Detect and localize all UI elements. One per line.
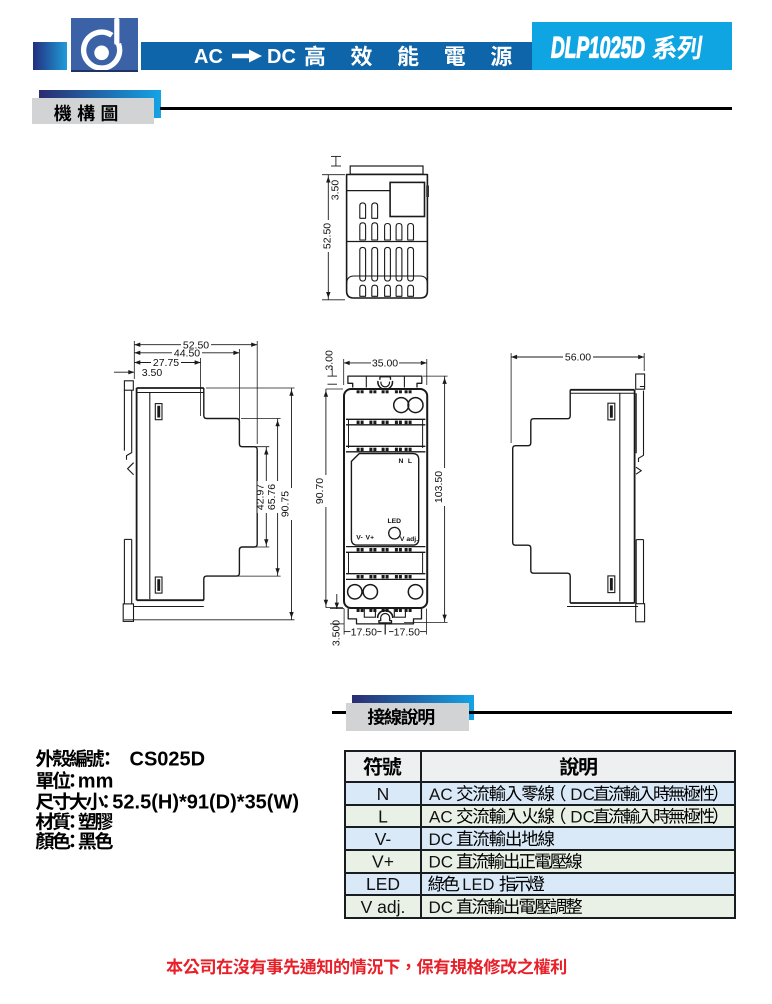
svg-text:17.50: 17.50 [394, 626, 420, 638]
svg-text:3.50: 3.50 [142, 367, 163, 379]
svg-text:90.75: 90.75 [280, 491, 292, 517]
svg-text:mm: mm [78, 771, 114, 793]
svg-text:42.97: 42.97 [255, 484, 267, 510]
svg-text:AC: AC [194, 46, 223, 68]
svg-text:3.50: 3.50 [330, 180, 342, 201]
svg-text:DC: DC [429, 898, 454, 917]
svg-text:V-: V- [356, 535, 362, 542]
svg-text:V+: V+ [366, 535, 375, 542]
svg-text:V adj.: V adj. [361, 897, 406, 917]
svg-text:17.50: 17.50 [351, 626, 377, 638]
svg-text:L: L [408, 458, 412, 465]
svg-text:AC: AC [429, 785, 453, 804]
svg-text:35.00: 35.00 [372, 358, 398, 370]
svg-text:DC: DC [429, 830, 454, 849]
svg-text:3.00: 3.00 [324, 350, 336, 371]
svg-text:V-: V- [375, 829, 392, 849]
svg-text:65.76: 65.76 [266, 484, 278, 510]
svg-text:LED: LED [366, 874, 400, 894]
svg-text:N: N [377, 784, 390, 804]
svg-text:V+: V+ [372, 852, 394, 872]
svg-text:DC: DC [570, 785, 595, 804]
svg-text:N: N [399, 458, 404, 465]
svg-text:L: L [378, 806, 388, 826]
svg-text:56.00: 56.00 [565, 352, 591, 364]
svg-text:AC: AC [429, 807, 453, 826]
svg-text:90.70: 90.70 [314, 478, 326, 504]
svg-text:V adj.: V adj. [400, 536, 418, 543]
svg-text:DC: DC [429, 853, 454, 872]
svg-text:LED: LED [387, 518, 401, 525]
svg-text:CS025D: CS025D [130, 749, 206, 771]
svg-text:103.50: 103.50 [433, 471, 445, 503]
svg-text:LED: LED [462, 876, 494, 894]
svg-text:DLP1025D: DLP1025D [551, 32, 645, 65]
svg-text:DC: DC [267, 46, 296, 68]
svg-text:52.50: 52.50 [322, 223, 334, 249]
svg-text:DC: DC [570, 807, 595, 826]
svg-text:52.5(H)*91(D)*35(W): 52.5(H)*91(D)*35(W) [112, 792, 299, 814]
